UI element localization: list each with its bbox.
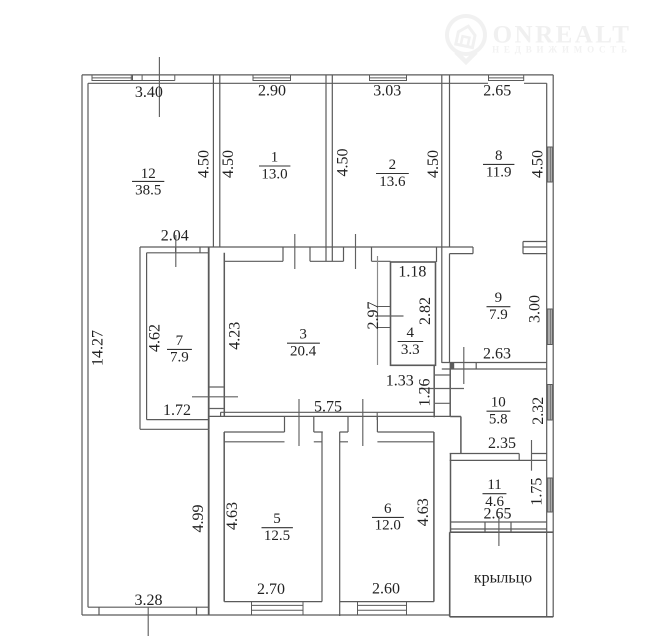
svg-text:2.63: 2.63 xyxy=(483,346,511,363)
svg-text:1: 1 xyxy=(271,149,279,165)
svg-text:12: 12 xyxy=(141,166,156,182)
svg-text:2.32: 2.32 xyxy=(530,397,547,425)
svg-text:4.63: 4.63 xyxy=(224,502,241,530)
svg-text:1.26: 1.26 xyxy=(417,379,434,407)
svg-text:3.40: 3.40 xyxy=(135,84,163,101)
svg-text:1.72: 1.72 xyxy=(163,402,191,419)
svg-text:11: 11 xyxy=(487,477,501,493)
svg-text:7: 7 xyxy=(176,333,184,349)
svg-text:2.35: 2.35 xyxy=(488,435,516,452)
svg-text:4: 4 xyxy=(407,325,415,341)
svg-text:14.27: 14.27 xyxy=(90,330,107,366)
svg-text:2.60: 2.60 xyxy=(372,581,400,598)
svg-text:20.4: 20.4 xyxy=(290,344,317,360)
svg-text:2: 2 xyxy=(389,157,397,173)
svg-text:2.82: 2.82 xyxy=(417,297,434,325)
svg-text:1.18: 1.18 xyxy=(398,264,426,281)
svg-text:13.6: 13.6 xyxy=(379,174,406,190)
svg-text:3.3: 3.3 xyxy=(401,342,420,358)
svg-text:4.50: 4.50 xyxy=(530,150,547,178)
svg-text:4.6: 4.6 xyxy=(485,494,504,510)
svg-text:4.63: 4.63 xyxy=(415,498,432,526)
svg-text:1.33: 1.33 xyxy=(386,373,414,390)
svg-text:38.5: 38.5 xyxy=(135,182,161,198)
svg-text:13.0: 13.0 xyxy=(261,166,287,182)
svg-text:7.9: 7.9 xyxy=(170,350,189,366)
svg-text:2.65: 2.65 xyxy=(483,83,511,100)
svg-text:4.62: 4.62 xyxy=(147,324,164,352)
svg-text:5: 5 xyxy=(273,511,281,527)
svg-text:2.04: 2.04 xyxy=(161,228,189,245)
svg-text:5.75: 5.75 xyxy=(314,399,342,416)
svg-text:3.00: 3.00 xyxy=(527,295,544,323)
svg-text:4.23: 4.23 xyxy=(226,322,243,350)
svg-text:3: 3 xyxy=(299,327,307,343)
svg-text:4.50: 4.50 xyxy=(334,149,351,177)
svg-text:3.28: 3.28 xyxy=(135,592,163,609)
svg-text:10: 10 xyxy=(491,395,506,411)
svg-text:4.50: 4.50 xyxy=(220,150,237,178)
svg-text:5.8: 5.8 xyxy=(489,412,508,428)
svg-text:1.75: 1.75 xyxy=(529,478,546,506)
svg-text:2.97: 2.97 xyxy=(365,302,382,330)
svg-text:крыльцо: крыльцо xyxy=(474,570,532,587)
svg-text:11.9: 11.9 xyxy=(486,165,512,181)
svg-text:12.5: 12.5 xyxy=(264,528,290,544)
svg-text:3.03: 3.03 xyxy=(373,83,401,100)
svg-text:НЕДВИЖИМОСТЬ: НЕДВИЖИМОСТЬ xyxy=(492,44,632,54)
svg-text:12.0: 12.0 xyxy=(375,518,401,534)
svg-text:2.90: 2.90 xyxy=(258,83,286,100)
svg-text:4.50: 4.50 xyxy=(425,150,442,178)
svg-text:6: 6 xyxy=(384,501,392,517)
svg-text:4.50: 4.50 xyxy=(195,150,212,178)
svg-text:8: 8 xyxy=(495,148,503,164)
svg-text:7.9: 7.9 xyxy=(489,307,508,323)
svg-text:2.70: 2.70 xyxy=(257,581,285,598)
svg-text:4.99: 4.99 xyxy=(190,505,207,533)
svg-text:9: 9 xyxy=(495,290,503,306)
